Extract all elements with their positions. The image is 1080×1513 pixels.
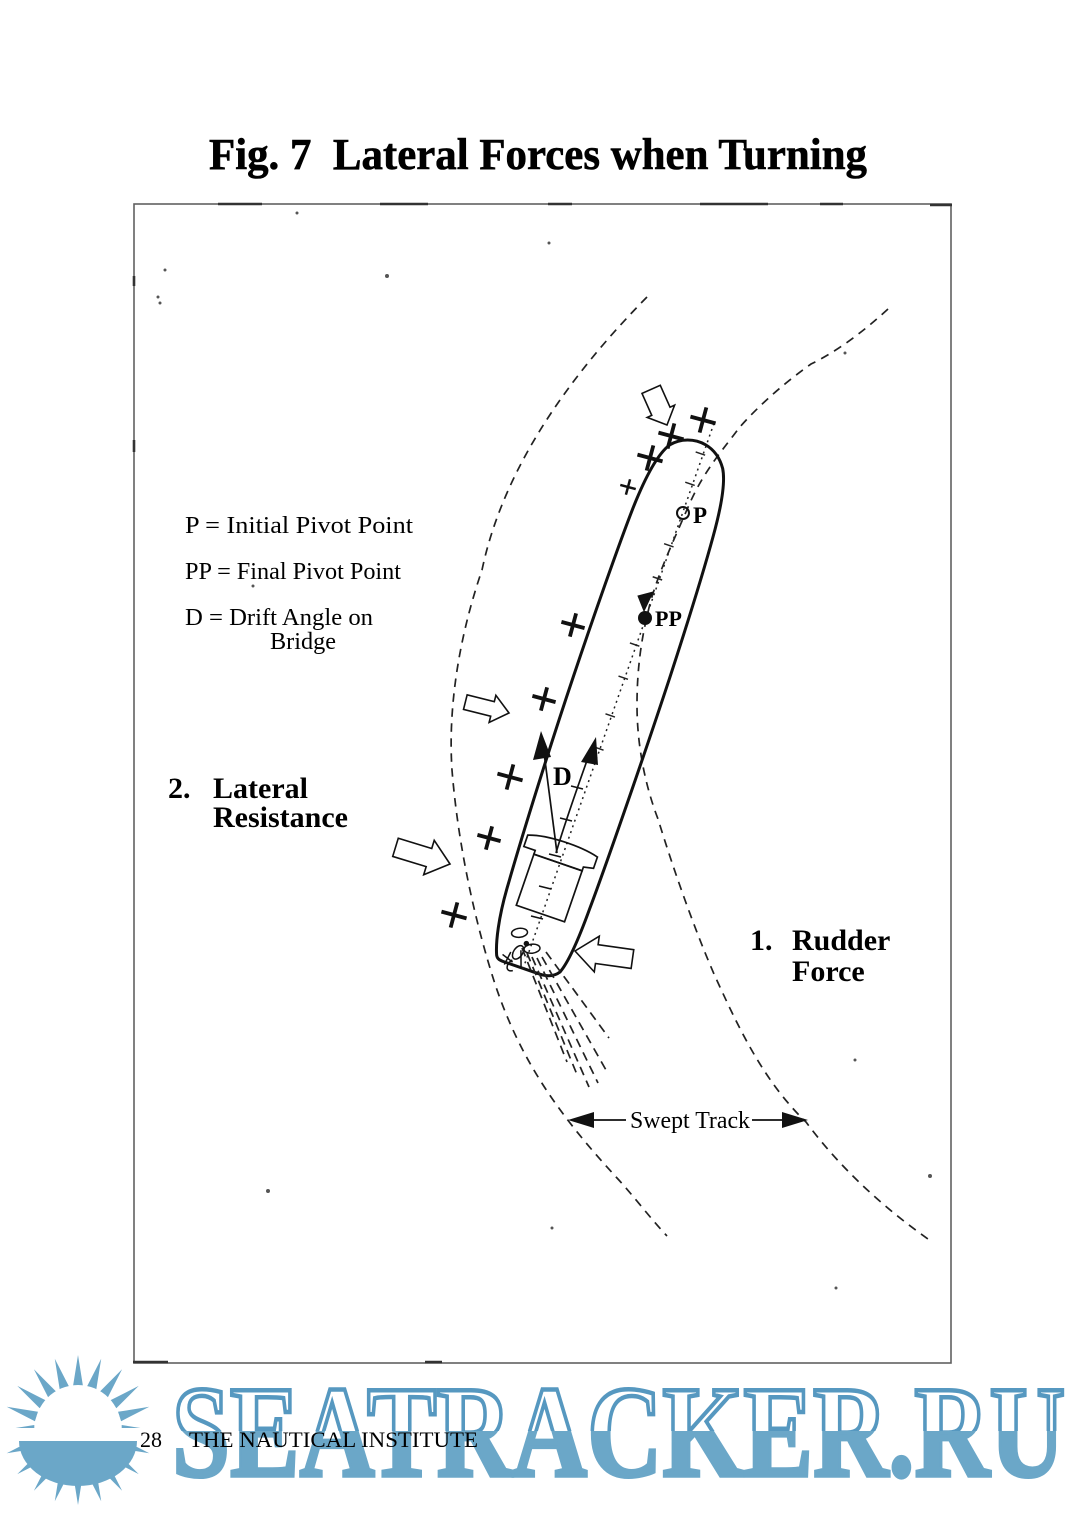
svg-text:Fig. 7 Lateral Forces when Tu: Fig. 7 Lateral Forces when Turning (209, 130, 867, 179)
svg-text:1.: 1. (750, 924, 773, 957)
svg-text:Resistance: Resistance (213, 801, 348, 834)
svg-text:Force: Force (792, 955, 865, 988)
svg-text:PP: PP (655, 606, 682, 631)
svg-text:2.: 2. (168, 772, 191, 805)
svg-text:Bridge: Bridge (270, 629, 336, 655)
svg-text:P = Initial Pivot Point: P = Initial Pivot Point (185, 513, 413, 539)
svg-text:Swept Track: Swept Track (630, 1108, 750, 1134)
svg-text:Rudder: Rudder (792, 924, 890, 957)
svg-text:PP = Final Pivot Point: PP = Final Pivot Point (185, 559, 401, 585)
svg-text:P: P (693, 503, 707, 528)
svg-text:THE NAUTICAL INSTITUTE: THE NAUTICAL INSTITUTE (189, 1427, 478, 1452)
svg-text:D = Drift Angle on: D = Drift Angle on (185, 605, 373, 631)
svg-text:28: 28 (140, 1427, 162, 1452)
svg-text:D: D (553, 762, 572, 791)
